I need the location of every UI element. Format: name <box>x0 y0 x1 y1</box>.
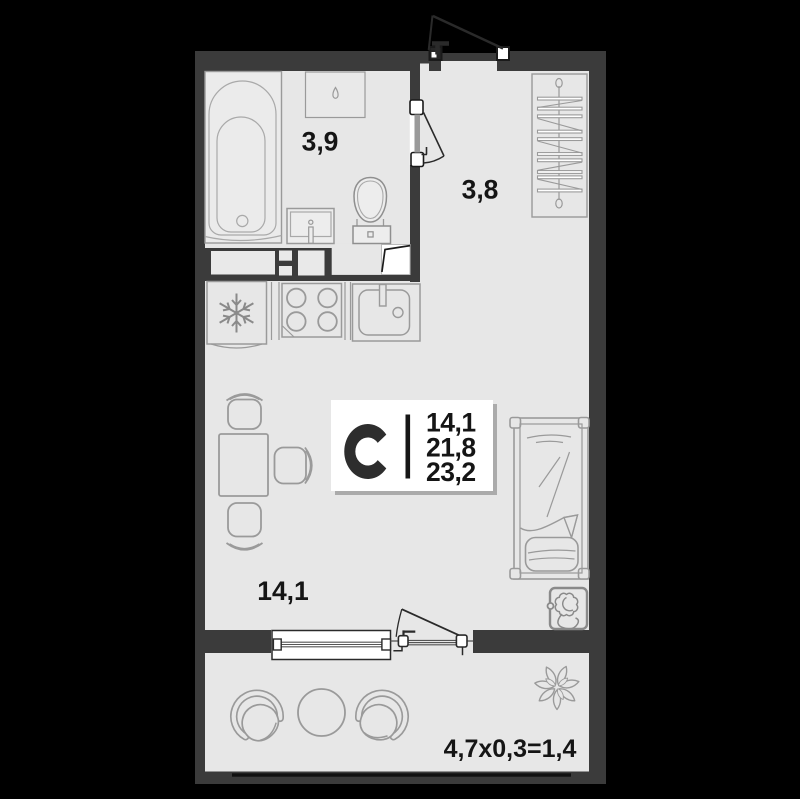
svg-text:3,9: 3,9 <box>302 127 339 157</box>
svg-text:23,2: 23,2 <box>426 457 476 487</box>
svg-text:3,8: 3,8 <box>462 175 499 205</box>
svg-text:14,1: 14,1 <box>257 576 309 606</box>
svg-text:4,7x0,3=1,4: 4,7x0,3=1,4 <box>444 735 577 763</box>
